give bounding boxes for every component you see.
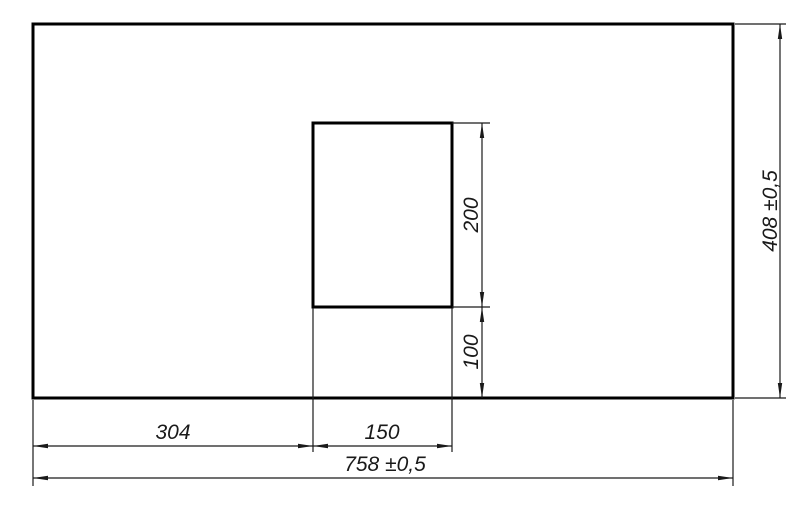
technical-drawing: 304 150 758 ±0,5 200 100 408 ±0,5 [0,0,800,528]
dim-label-cutout-width: 150 [364,421,399,444]
dim-label-total-width: 758 ±0,5 [344,453,426,476]
cutout-outline [313,123,452,307]
dim-label-total-height: 408 ±0,5 [759,170,782,252]
dim-label-cutout-height: 200 [460,197,483,233]
drawing-canvas: 304 150 758 ±0,5 200 100 408 ±0,5 [0,0,800,528]
dim-label-offset-bottom: 100 [460,334,483,369]
dim-label-offset-left: 304 [155,421,190,444]
panel-outline [33,24,733,398]
